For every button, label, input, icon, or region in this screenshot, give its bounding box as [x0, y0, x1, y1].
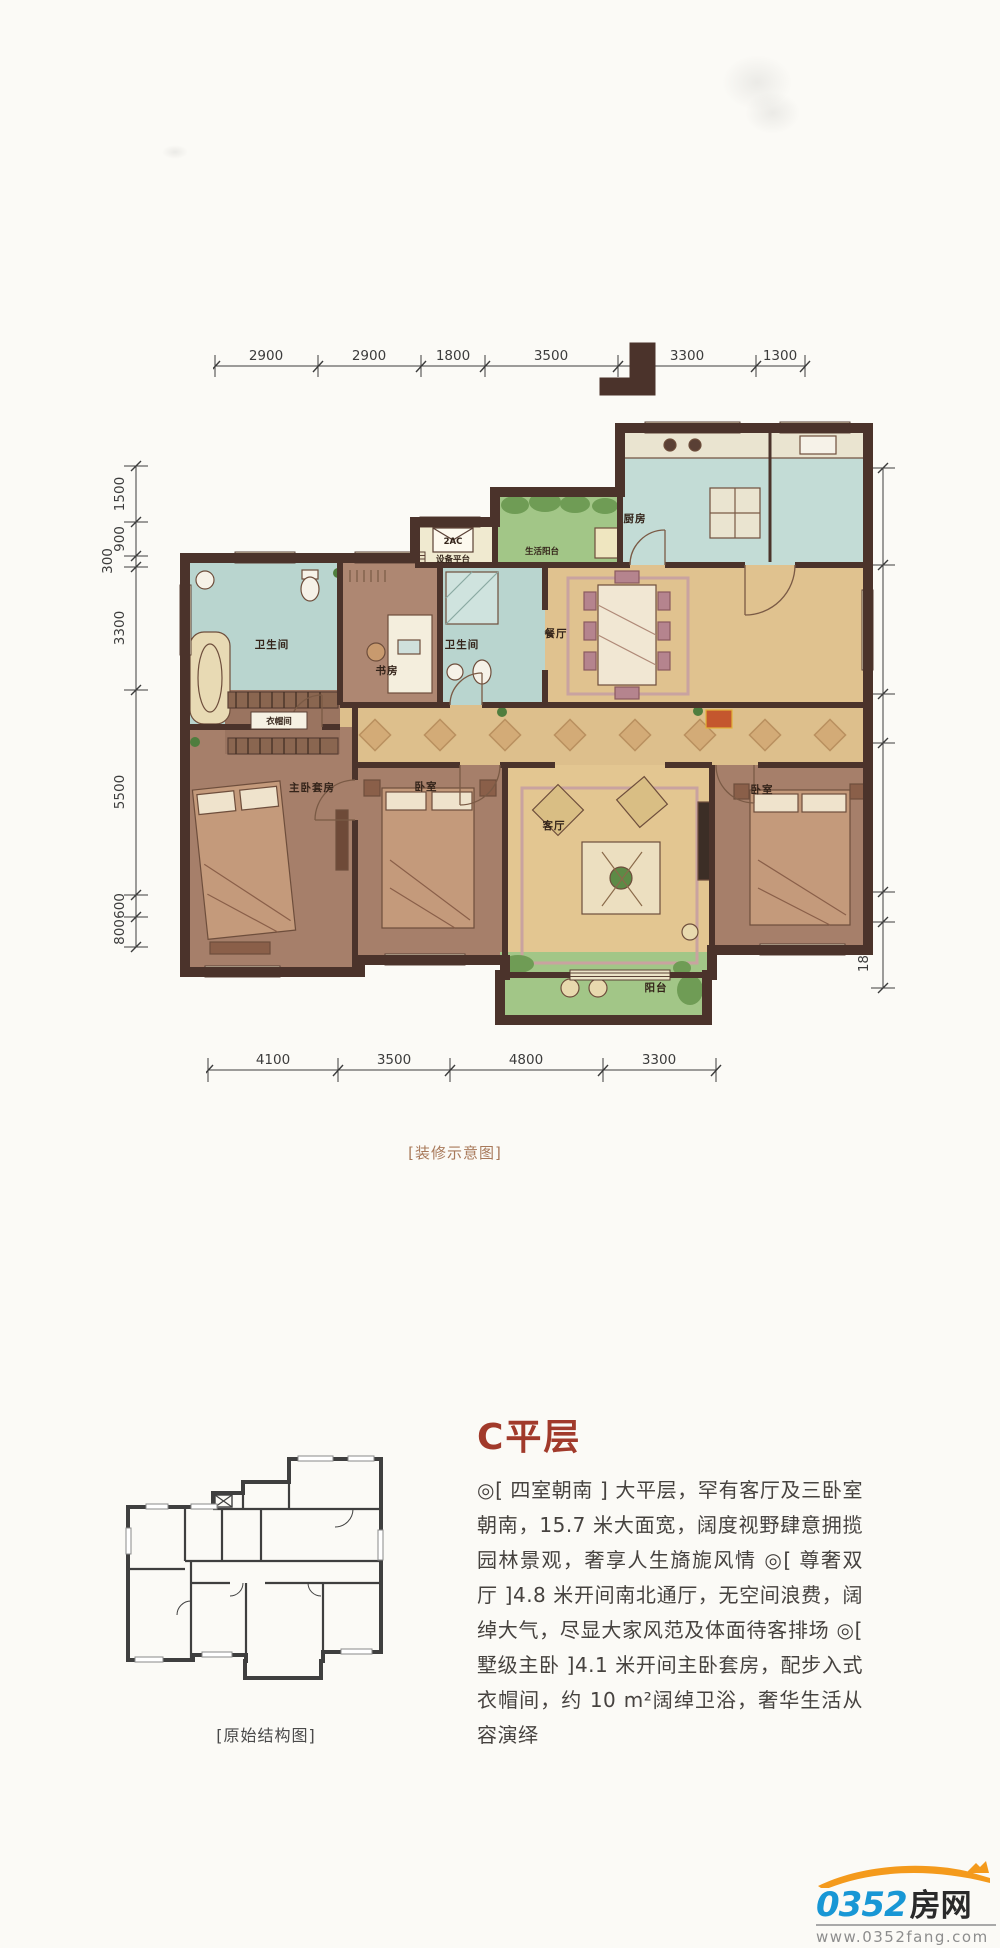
dim-left-1: 1500	[112, 477, 128, 511]
brand-cn: 房网	[910, 1891, 972, 1921]
dim-left-6: 600	[112, 893, 128, 919]
structure-windows	[126, 1456, 383, 1662]
dim-bottom-1: 4100	[256, 1052, 290, 1068]
label-bath-mid: 卫生间	[445, 638, 480, 651]
dim-left-4: 3300	[112, 611, 128, 645]
label-master-suite: 主卧套房	[289, 781, 335, 794]
dim-left-3: 300	[100, 548, 116, 574]
caption-decorated-plan: [装修示意图]	[380, 1142, 530, 1163]
label-dining: 餐厅	[544, 627, 568, 640]
brochure-page: 2900 2900 1800 3500 3300 1300 1500 900 3…	[0, 0, 1000, 1948]
dim-bottom-4: 3300	[642, 1052, 676, 1068]
label-study: 书房	[376, 664, 399, 677]
label-bath-top: 卫生间	[255, 638, 290, 651]
site-logo: 0352 房网 www.0352fang.com	[816, 1860, 996, 1946]
paper-smudge	[162, 145, 188, 159]
dim-bottom-2: 3500	[377, 1052, 411, 1068]
dimension-line-bottom: 4100 3500 4800 3300	[206, 1042, 726, 1084]
label-bedroom-right: 卧室	[751, 783, 774, 796]
dim-left-2: 900	[112, 526, 128, 552]
brand-text: 0352 房网	[816, 1890, 996, 1921]
label-equipment-code: 2AC	[444, 537, 463, 547]
roof-icon	[816, 1860, 994, 1888]
label-kitchen: 厨房	[624, 512, 647, 525]
paper-smudge	[745, 92, 800, 134]
brand-number: 0352	[816, 1890, 907, 1920]
label-living: 客厅	[542, 819, 566, 832]
dim-bottom-3: 4800	[509, 1052, 543, 1068]
caption-original-plan: [原始结构图]	[190, 1722, 342, 1746]
brand-url: www.0352fang.com	[816, 1924, 996, 1946]
dim-left-5: 5500	[112, 775, 128, 809]
dimension-line-left: 1500 900 300 3300 5500 600 800	[100, 460, 148, 955]
label-bedroom-center: 卧室	[415, 780, 438, 793]
label-service-balcony: 生活阳台	[525, 546, 560, 557]
label-balcony: 阳台	[645, 981, 668, 994]
decorated-floor-plan: 卫生间 书房 卫生间 设备平台 2AC 生活阳台 厨房 餐厅 衣帽间 主卧套房 …	[150, 340, 890, 1040]
layout-description: ◎[ 四室朝南 ] 大平层，罕有客厅及三卧室朝南，15.7 米大面宽，阔度视野肆…	[477, 1473, 863, 1753]
original-structure-plan	[115, 1438, 391, 1728]
layout-title: C平层	[477, 1408, 581, 1460]
label-cloakroom: 衣帽间	[266, 716, 292, 727]
dim-left-7: 800	[112, 919, 128, 945]
label-equipment-platform: 设备平台	[436, 554, 471, 565]
